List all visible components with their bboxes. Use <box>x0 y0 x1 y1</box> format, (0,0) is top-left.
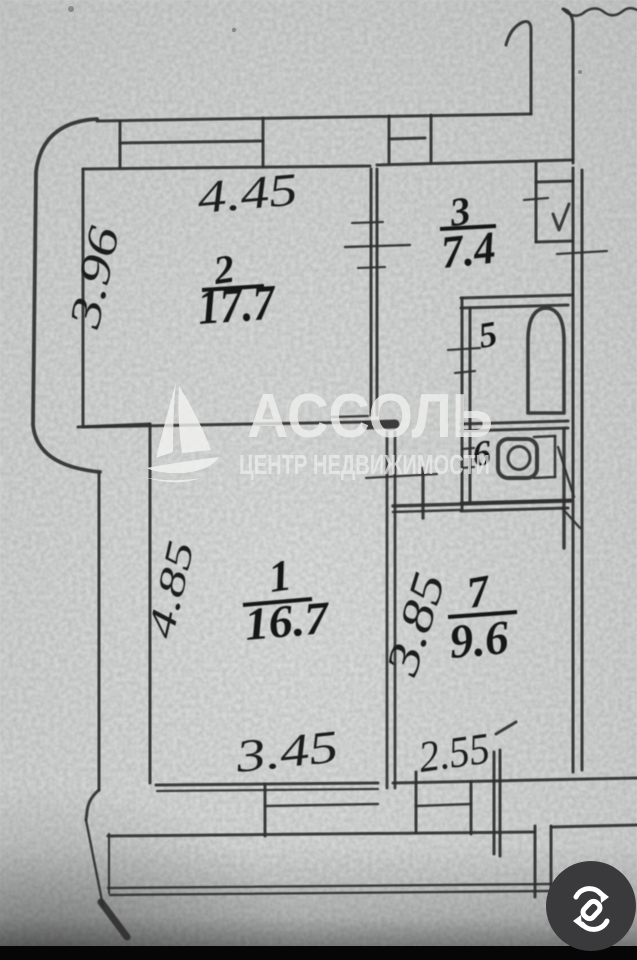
svg-text:16.7: 16.7 <box>242 592 332 650</box>
svg-text:7.4: 7.4 <box>439 222 498 278</box>
svg-text:9.6: 9.6 <box>447 611 510 669</box>
svg-text:3.45: 3.45 <box>232 721 340 783</box>
svg-text:2.55: 2.55 <box>416 723 493 781</box>
svg-text:17.7: 17.7 <box>196 274 278 335</box>
svg-text:ЦЕНТР НЕДВИЖИМОСТИ: ЦЕНТР НЕДВИЖИМОСТИ <box>239 449 490 480</box>
svg-text:4.45: 4.45 <box>195 163 299 223</box>
svg-text:АССОЛЬ: АССОЛЬ <box>247 382 493 451</box>
